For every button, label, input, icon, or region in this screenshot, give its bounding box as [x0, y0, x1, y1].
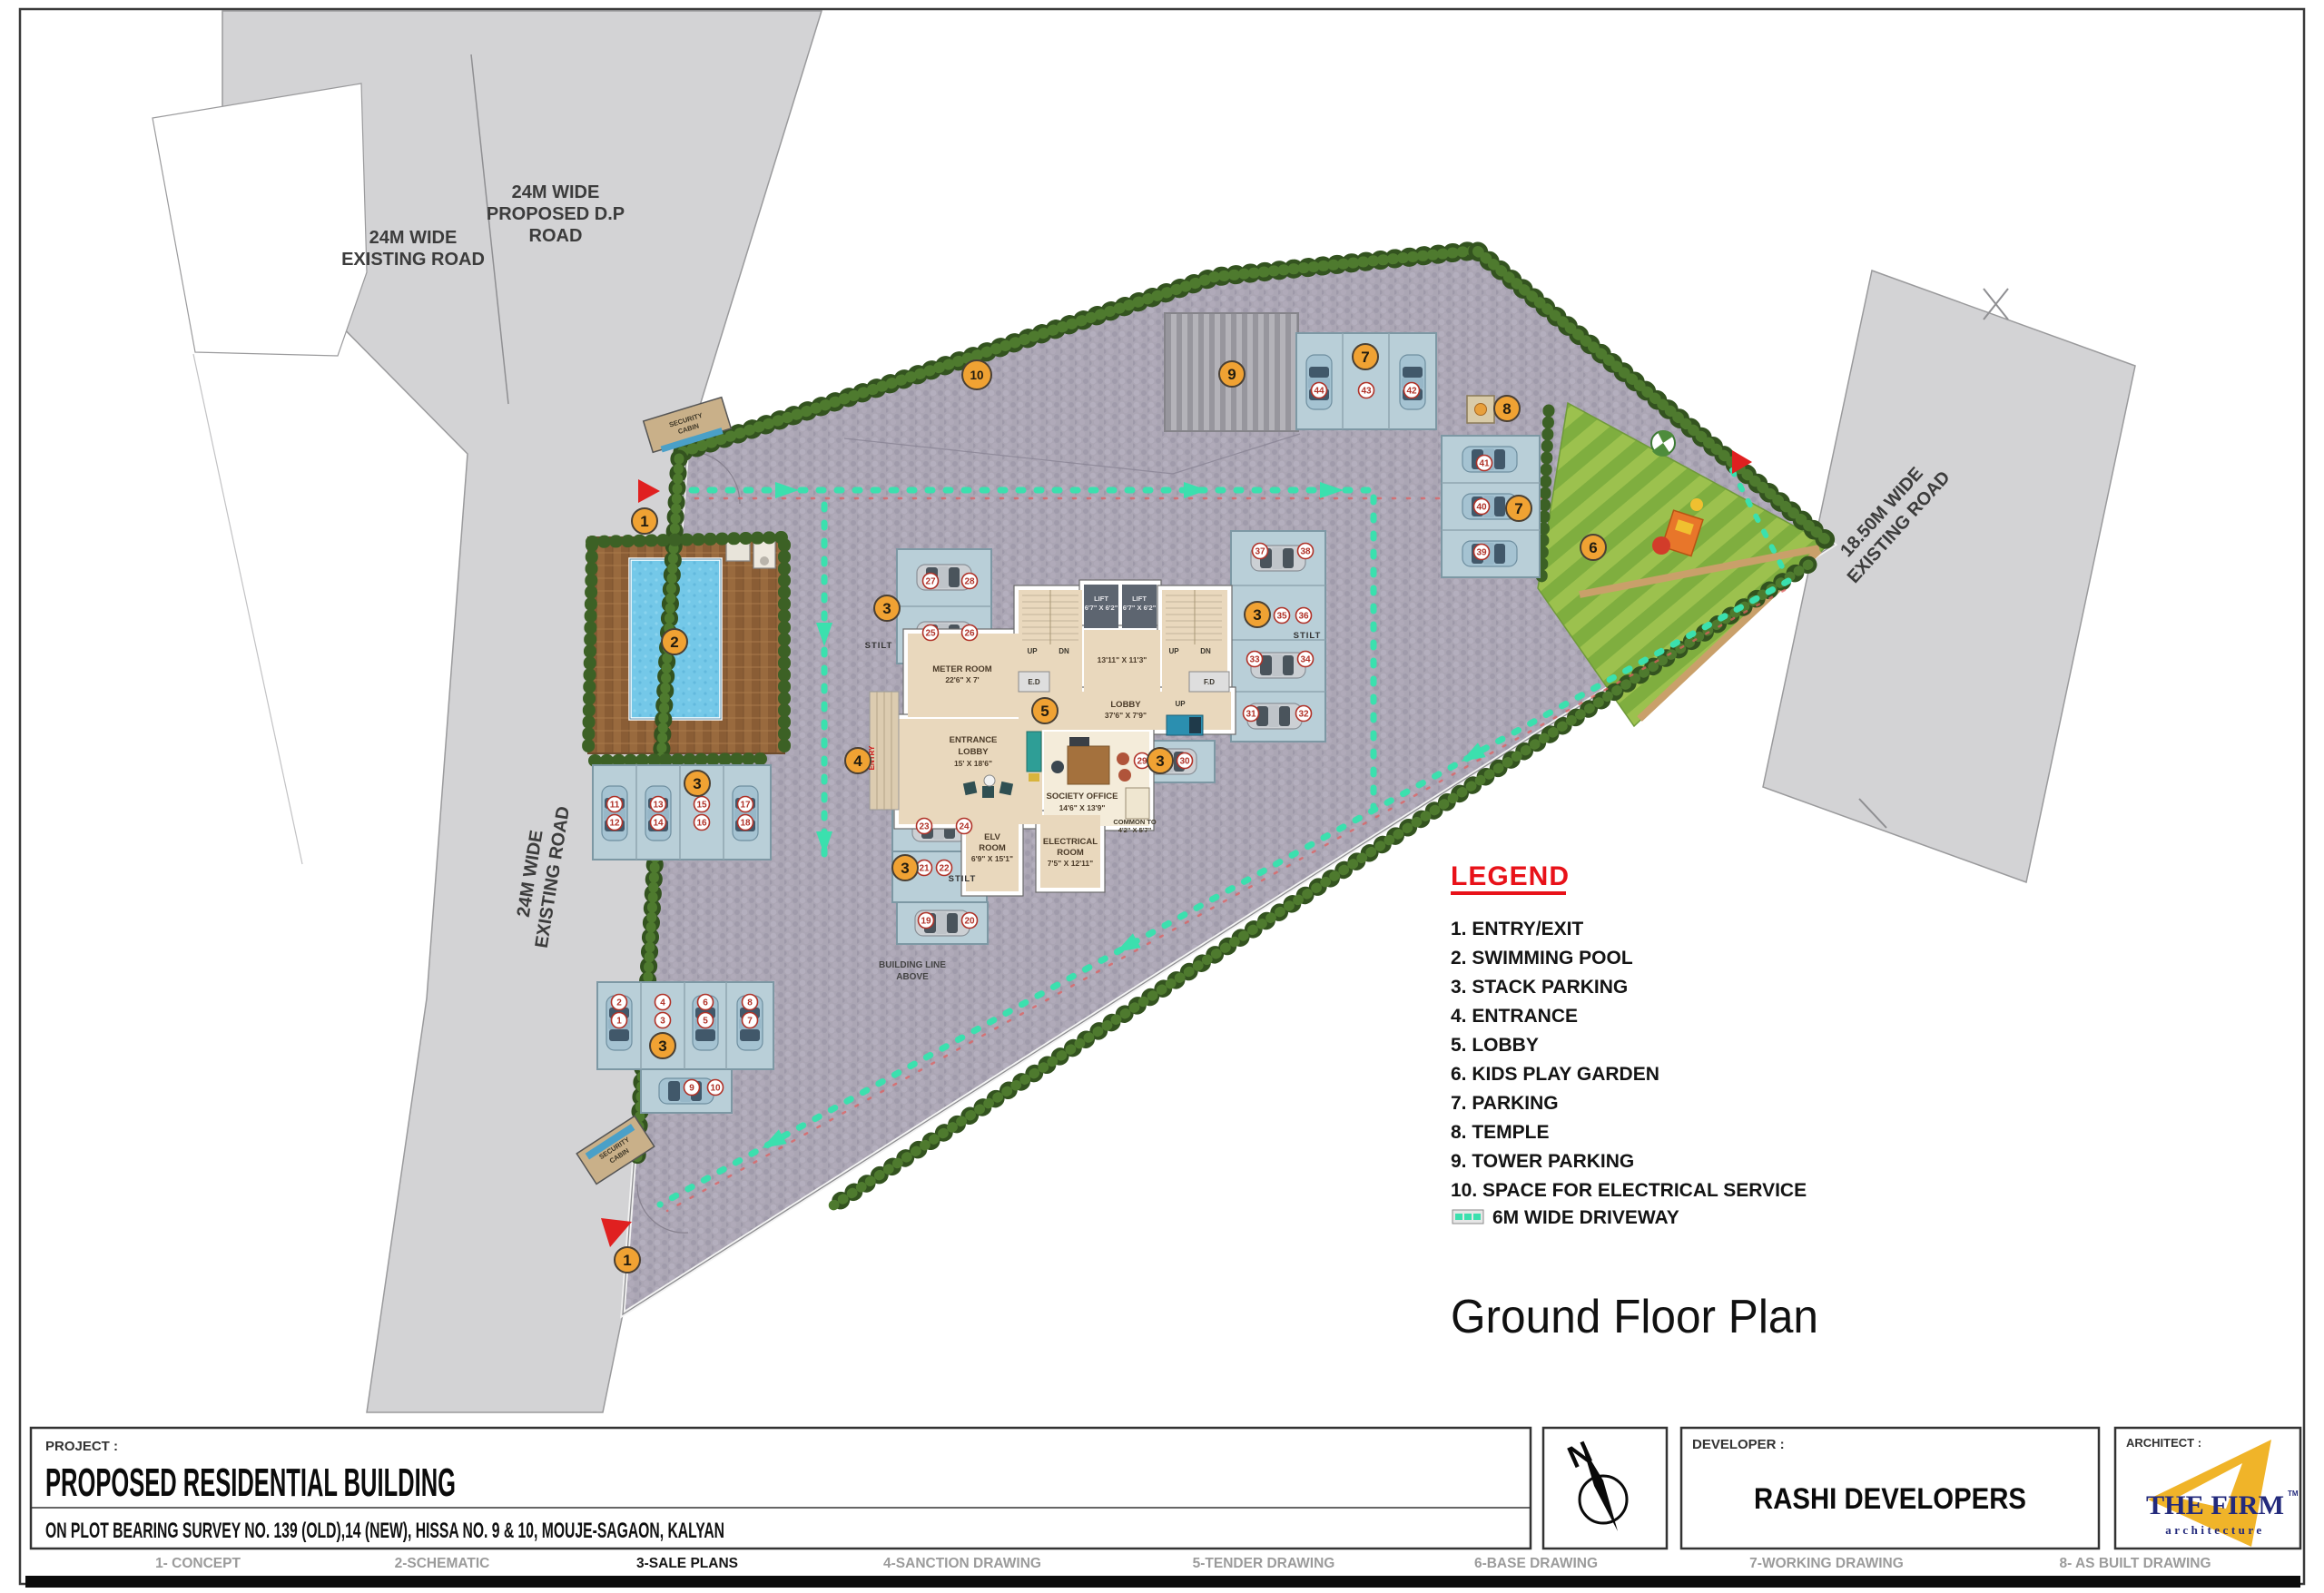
svg-text:6'9" X 15'1": 6'9" X 15'1" — [971, 854, 1013, 863]
svg-text:32: 32 — [1298, 710, 1309, 720]
svg-text:29: 29 — [1137, 757, 1147, 767]
car-slot-2: 2 — [612, 995, 627, 1010]
car-slot-12: 12 — [607, 815, 623, 831]
car-slot-1: 1 — [612, 1013, 627, 1028]
svg-text:3: 3 — [693, 775, 701, 792]
plan-marker-6: 6 — [1581, 535, 1606, 560]
svg-text:28: 28 — [964, 577, 975, 587]
svg-text:14: 14 — [653, 819, 664, 829]
plan-marker-8: 8 — [1494, 396, 1520, 421]
svg-text:26: 26 — [964, 629, 975, 639]
svg-text:24: 24 — [959, 822, 970, 832]
car-slot-31: 31 — [1244, 706, 1259, 722]
car-slot-40: 40 — [1474, 499, 1490, 515]
svg-text:35: 35 — [1276, 612, 1287, 622]
svg-text:33: 33 — [1249, 655, 1260, 665]
svg-text:17: 17 — [740, 801, 751, 811]
car-slot-20: 20 — [962, 913, 978, 929]
svg-text:F.D: F.D — [1204, 678, 1215, 686]
legend-item-6: 6. KIDS PLAY GARDEN — [1451, 1064, 1659, 1085]
svg-text:21: 21 — [919, 864, 930, 874]
car-slot-3: 3 — [655, 1013, 671, 1028]
svg-text:43: 43 — [1361, 387, 1372, 397]
car-slot-5: 5 — [698, 1013, 714, 1028]
svg-text:ROOM: ROOM — [979, 843, 1006, 853]
svg-text:PROPOSED D.P: PROPOSED D.P — [487, 204, 625, 224]
svg-text:31: 31 — [1246, 710, 1256, 720]
svg-text:36: 36 — [1298, 612, 1309, 622]
svg-text:1: 1 — [640, 513, 648, 530]
svg-text:37'6" X 7'9": 37'6" X 7'9" — [1105, 711, 1147, 720]
plan-marker-3: 3 — [1147, 748, 1173, 773]
svg-text:5: 5 — [1040, 703, 1049, 720]
svg-text:3: 3 — [901, 860, 909, 877]
svg-text:UP: UP — [1168, 647, 1179, 655]
car-slot-11: 11 — [607, 797, 623, 812]
plan-marker-3: 3 — [892, 855, 918, 880]
svg-text:24M WIDE: 24M WIDE — [369, 228, 458, 248]
room-label-lobby: LOBBY — [1110, 700, 1141, 710]
svg-text:3: 3 — [1156, 752, 1164, 770]
svg-text:architecture: architecture — [2165, 1523, 2264, 1537]
svg-text:9: 9 — [689, 1084, 694, 1094]
legend: LEGEND 1. ENTRY/EXIT2. SWIMMING POOL3. S… — [1451, 861, 1807, 1228]
svg-text:39: 39 — [1476, 548, 1487, 558]
phase-8: 8- AS BUILT DRAWING — [2059, 1556, 2211, 1571]
svg-text:22'6" X 7': 22'6" X 7' — [945, 675, 979, 684]
svg-text:37: 37 — [1255, 547, 1265, 557]
legend-item-5: 5. LOBBY — [1451, 1035, 1539, 1056]
car-slot-22: 22 — [937, 860, 952, 876]
room-label-meter: METER ROOM — [932, 664, 992, 674]
svg-text:COMMON TO: COMMON TO — [1113, 818, 1157, 826]
svg-text:2: 2 — [616, 998, 622, 1008]
car-slot-39: 39 — [1474, 545, 1490, 560]
svg-text:LIFT: LIFT — [1094, 595, 1108, 603]
svg-text:EXISTING ROAD: EXISTING ROAD — [341, 250, 485, 270]
car-slot-21: 21 — [917, 860, 932, 876]
plan-marker-2: 2 — [662, 629, 687, 654]
car-slot-19: 19 — [919, 913, 934, 929]
svg-text:3: 3 — [1253, 606, 1261, 624]
car-slot-26: 26 — [962, 625, 978, 641]
car-slot-27: 27 — [923, 574, 939, 589]
room-label-entrance: ENTRANCE — [950, 735, 998, 745]
car-slot-16: 16 — [694, 815, 710, 831]
phase-2: 2-SCHEMATIC — [395, 1556, 490, 1571]
svg-text:11: 11 — [610, 801, 620, 811]
legend-item-8: 8. TEMPLE — [1451, 1122, 1550, 1143]
svg-text:1: 1 — [616, 1017, 622, 1027]
plan-marker-3: 3 — [874, 595, 900, 621]
svg-text:10: 10 — [710, 1084, 721, 1094]
svg-text:STILT: STILT — [1294, 631, 1322, 641]
phase-strip: 1- CONCEPT2-SCHEMATIC3-SALE PLANS4-SANCT… — [155, 1556, 2211, 1571]
legend-item-1: 1. ENTRY/EXIT — [1451, 919, 1583, 939]
developer-name: RASHI DEVELOPERS — [1754, 1482, 2026, 1515]
room-label-elv: ELV — [984, 832, 1000, 842]
svg-text:34: 34 — [1300, 655, 1311, 665]
architect-label: ARCHITECT : — [2126, 1436, 2201, 1450]
plan-marker-9: 9 — [1219, 361, 1245, 387]
svg-text:3: 3 — [658, 1037, 666, 1055]
plan-marker-1: 1 — [615, 1247, 640, 1273]
svg-text:ROOM: ROOM — [1057, 848, 1084, 858]
car-slot-38: 38 — [1298, 544, 1314, 559]
car-slot-37: 37 — [1253, 544, 1268, 559]
phase-1: 1- CONCEPT — [155, 1556, 241, 1571]
car-slot-28: 28 — [962, 574, 978, 589]
car-slot-33: 33 — [1247, 652, 1263, 667]
phase-3: 3-SALE PLANS — [636, 1556, 738, 1571]
room-label-society: SOCIETY OFFICE — [1046, 792, 1118, 801]
plan-marker-7: 7 — [1506, 496, 1531, 521]
svg-text:3: 3 — [882, 600, 891, 617]
svg-text:23: 23 — [919, 822, 930, 832]
phase-7: 7-WORKING DRAWING — [1749, 1556, 1904, 1571]
plan-marker-7: 7 — [1353, 344, 1378, 369]
svg-text:6'7" X 6'2": 6'7" X 6'2" — [1123, 604, 1157, 612]
car-slot-4: 4 — [655, 995, 671, 1010]
svg-text:5: 5 — [703, 1017, 708, 1027]
svg-text:41: 41 — [1479, 459, 1490, 469]
svg-text:6'7" X 6'2": 6'7" X 6'2" — [1085, 604, 1118, 612]
svg-text:4: 4 — [853, 752, 862, 770]
svg-text:13: 13 — [653, 801, 664, 811]
svg-text:THE FIRM: THE FIRM — [2146, 1490, 2284, 1520]
room-label-core-dim: 13'11" X 11'3" — [1098, 655, 1147, 664]
car-slot-34: 34 — [1298, 652, 1314, 667]
svg-text:42: 42 — [1406, 387, 1417, 397]
svg-text:3: 3 — [660, 1017, 665, 1027]
svg-text:UP: UP — [1175, 700, 1186, 708]
svg-text:10: 10 — [970, 369, 983, 382]
plan-marker-3: 3 — [650, 1033, 675, 1058]
legend-item-3: 3. STACK PARKING — [1451, 977, 1628, 998]
project-label: PROJECT : — [45, 1439, 118, 1454]
car-slot-17: 17 — [738, 797, 753, 812]
road-white-wedge — [153, 84, 367, 356]
car-slot-13: 13 — [651, 797, 666, 812]
car-slot-18: 18 — [738, 815, 753, 831]
svg-text:19: 19 — [921, 917, 931, 927]
car-slot-23: 23 — [917, 819, 932, 834]
car-slot-30: 30 — [1177, 753, 1193, 769]
plan-title: Ground Floor Plan — [1451, 1291, 1818, 1343]
svg-text:7: 7 — [747, 1017, 753, 1027]
car-slot-25: 25 — [923, 625, 939, 641]
svg-text:24M WIDE: 24M WIDE — [512, 182, 600, 202]
svg-text:7: 7 — [1361, 349, 1369, 366]
svg-text:25: 25 — [925, 629, 936, 639]
car-slot-7: 7 — [743, 1013, 758, 1028]
car-slot-41: 41 — [1477, 456, 1492, 471]
svg-text:STILT: STILT — [949, 874, 977, 884]
project-title: PROPOSED RESIDENTIAL BUILDING — [45, 1460, 456, 1505]
developer-label: DEVELOPER : — [1692, 1437, 1785, 1452]
svg-text:DN: DN — [1059, 647, 1069, 655]
svg-text:12: 12 — [609, 819, 620, 829]
svg-text:LOBBY: LOBBY — [958, 747, 989, 757]
svg-text:6: 6 — [703, 998, 708, 1008]
svg-text:18: 18 — [740, 819, 751, 829]
svg-text:9: 9 — [1227, 366, 1236, 383]
driveway-note: 6M WIDE DRIVEWAY — [1492, 1207, 1679, 1228]
car-slot-35: 35 — [1275, 608, 1290, 624]
svg-text:TM: TM — [2288, 1490, 2299, 1498]
car-slot-24: 24 — [957, 819, 972, 834]
building-line-label: BUILDING LINE — [879, 960, 946, 970]
plan-marker-4: 4 — [845, 748, 871, 773]
svg-text:27: 27 — [925, 577, 936, 587]
svg-text:30: 30 — [1179, 757, 1190, 767]
plan-marker-10: 10 — [962, 360, 991, 389]
car-slot-42: 42 — [1404, 383, 1420, 398]
svg-text:6: 6 — [1589, 539, 1597, 556]
svg-text:2: 2 — [670, 634, 678, 651]
phase-5: 5-TENDER DRAWING — [1193, 1556, 1335, 1571]
svg-text:40: 40 — [1476, 503, 1487, 513]
svg-text:7'5" X 12'11": 7'5" X 12'11" — [1048, 859, 1093, 868]
legend-item-9: 9. TOWER PARKING — [1451, 1151, 1634, 1172]
phase-6: 6-BASE DRAWING — [1474, 1556, 1598, 1571]
svg-text:20: 20 — [964, 917, 975, 927]
svg-text:15: 15 — [696, 801, 707, 811]
svg-text:STILT: STILT — [865, 641, 893, 651]
plan-marker-5: 5 — [1032, 698, 1058, 723]
legend-title: LEGEND — [1451, 861, 1570, 891]
svg-text:15' X 18'6": 15' X 18'6" — [954, 759, 992, 768]
svg-text:DN: DN — [1200, 647, 1211, 655]
svg-text:44: 44 — [1314, 387, 1324, 397]
svg-text:LIFT: LIFT — [1132, 595, 1147, 603]
project-subtitle: ON PLOT BEARING SURVEY NO. 139 (OLD),14 … — [45, 1519, 724, 1543]
plan-marker-3: 3 — [1245, 602, 1270, 627]
car-slot-43: 43 — [1359, 383, 1374, 398]
svg-text:1: 1 — [623, 1252, 631, 1269]
svg-text:38: 38 — [1300, 547, 1311, 557]
svg-text:ROAD: ROAD — [529, 226, 583, 246]
svg-text:4'2" X 5'7": 4'2" X 5'7" — [1118, 826, 1152, 834]
car-slot-36: 36 — [1296, 608, 1312, 624]
drawing-sheet: 24M WIDE EXISTING ROAD 24M WIDE PROPOSED… — [0, 0, 2324, 1593]
svg-text:7: 7 — [1514, 500, 1522, 517]
road-right — [1763, 270, 2135, 882]
svg-text:UP: UP — [1027, 647, 1038, 655]
car-slot-44: 44 — [1312, 383, 1327, 398]
legend-item-2: 2. SWIMMING POOL — [1451, 948, 1633, 969]
legend-item-4: 4. ENTRANCE — [1451, 1006, 1578, 1027]
site-plan-svg: 24M WIDE EXISTING ROAD 24M WIDE PROPOSED… — [0, 0, 2324, 1593]
legend-item-7: 7. PARKING — [1451, 1093, 1559, 1114]
legend-item-10: 10. SPACE FOR ELECTRICAL SERVICE — [1451, 1180, 1807, 1201]
plan-marker-1: 1 — [632, 508, 657, 534]
temple — [1467, 396, 1494, 423]
svg-text:E.D: E.D — [1028, 678, 1040, 686]
car-slot-32: 32 — [1296, 706, 1312, 722]
car-slot-6: 6 — [698, 995, 714, 1010]
svg-text:8: 8 — [1502, 400, 1511, 418]
plan-marker-3: 3 — [684, 771, 710, 796]
car-slot-8: 8 — [743, 995, 758, 1010]
svg-text:ABOVE: ABOVE — [896, 972, 929, 982]
bottom-bar — [25, 1576, 2300, 1588]
car-slot-14: 14 — [651, 815, 666, 831]
svg-text:22: 22 — [939, 864, 950, 874]
room-label-electrical: ELECTRICAL — [1043, 837, 1098, 847]
svg-text:8: 8 — [747, 998, 753, 1008]
phase-4: 4-SANCTION DRAWING — [883, 1556, 1041, 1571]
car-slot-15: 15 — [694, 797, 710, 812]
car-slot-9: 9 — [684, 1080, 700, 1096]
svg-text:4: 4 — [660, 998, 665, 1008]
svg-text:14'6" X 13'9": 14'6" X 13'9" — [1059, 803, 1106, 812]
svg-text:16: 16 — [696, 819, 707, 829]
car-slot-10: 10 — [708, 1080, 724, 1096]
